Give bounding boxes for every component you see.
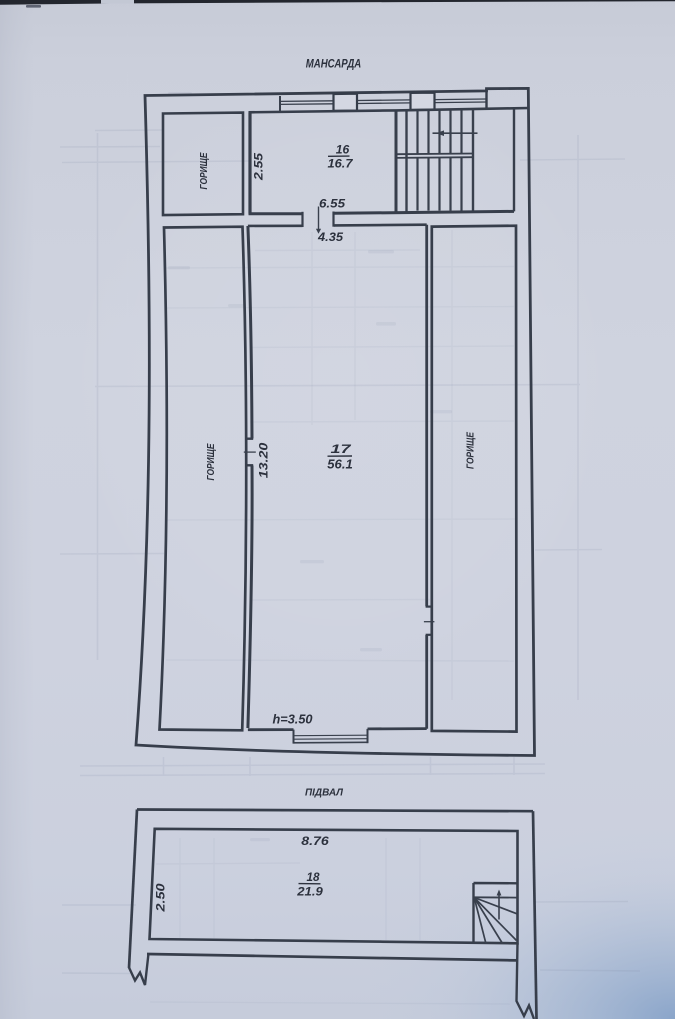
svg-text:6.55: 6.55 bbox=[319, 197, 345, 211]
svg-text:2.50: 2.50 bbox=[154, 883, 168, 913]
svg-text:4.35: 4.35 bbox=[317, 230, 343, 244]
svg-text:8.76: 8.76 bbox=[301, 834, 329, 848]
svg-text:16: 16 bbox=[336, 145, 350, 157]
svg-text:56.1: 56.1 bbox=[327, 458, 353, 472]
svg-text:МАНСАРДА: МАНСАРДА bbox=[306, 57, 362, 71]
svg-text:ПІДВАЛ: ПІДВАЛ bbox=[305, 787, 344, 799]
svg-text:2.55: 2.55 bbox=[252, 153, 266, 182]
svg-text:18: 18 bbox=[307, 872, 321, 884]
svg-text:21.9: 21.9 bbox=[296, 885, 323, 899]
svg-text:ГОРИЩЕ: ГОРИЩЕ bbox=[198, 152, 210, 190]
svg-text:ГОРИЩЕ: ГОРИЩЕ bbox=[465, 431, 477, 469]
svg-text:16.7: 16.7 bbox=[328, 157, 354, 171]
svg-text:13.20: 13.20 bbox=[257, 442, 271, 478]
svg-text:17: 17 bbox=[331, 442, 353, 456]
svg-text:ГОРИЩЕ: ГОРИЩЕ bbox=[205, 443, 217, 481]
svg-text:h=3.50: h=3.50 bbox=[273, 713, 313, 727]
